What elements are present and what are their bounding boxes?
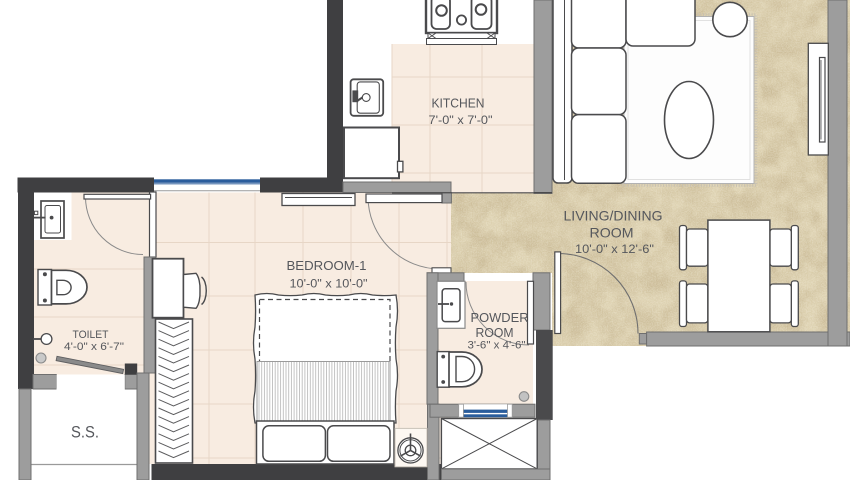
svg-text:BEDROOM-1: BEDROOM-1: [287, 258, 367, 273]
svg-text:7'-0" x 7'-0": 7'-0" x 7'-0": [429, 113, 493, 127]
svg-text:KITCHEN: KITCHEN: [432, 96, 485, 111]
svg-text:3'-6" x 4'-6": 3'-6" x 4'-6": [468, 340, 526, 352]
svg-text:4'-0" x 6'-7": 4'-0" x 6'-7": [64, 341, 124, 353]
svg-text:POWDER: POWDER: [471, 311, 529, 325]
svg-text:10'-0" x 10'-0": 10'-0" x 10'-0": [290, 277, 368, 291]
svg-text:TOILET: TOILET: [73, 329, 109, 341]
svg-text:ROOM: ROOM: [476, 326, 514, 340]
svg-text:LIVING/DINING: LIVING/DINING: [564, 209, 663, 224]
svg-text:10'-0" x 12'-6": 10'-0" x 12'-6": [575, 242, 654, 256]
svg-text:ROOM: ROOM: [590, 226, 634, 241]
svg-text:S.S.: S.S.: [71, 424, 99, 442]
